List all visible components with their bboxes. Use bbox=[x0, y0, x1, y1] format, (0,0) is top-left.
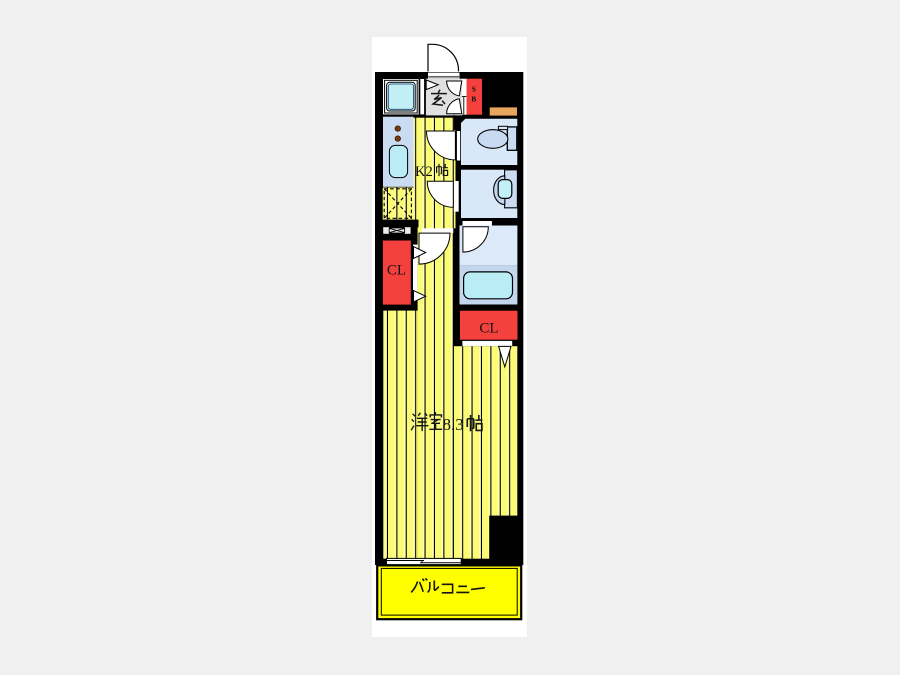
svg-text:B: B bbox=[471, 95, 476, 104]
svg-text:CL: CL bbox=[479, 321, 498, 337]
svg-text:S: S bbox=[472, 85, 476, 94]
svg-text:CL: CL bbox=[387, 263, 406, 279]
svg-text:K2: K2 bbox=[415, 164, 433, 180]
svg-text:8.3: 8.3 bbox=[443, 415, 464, 434]
